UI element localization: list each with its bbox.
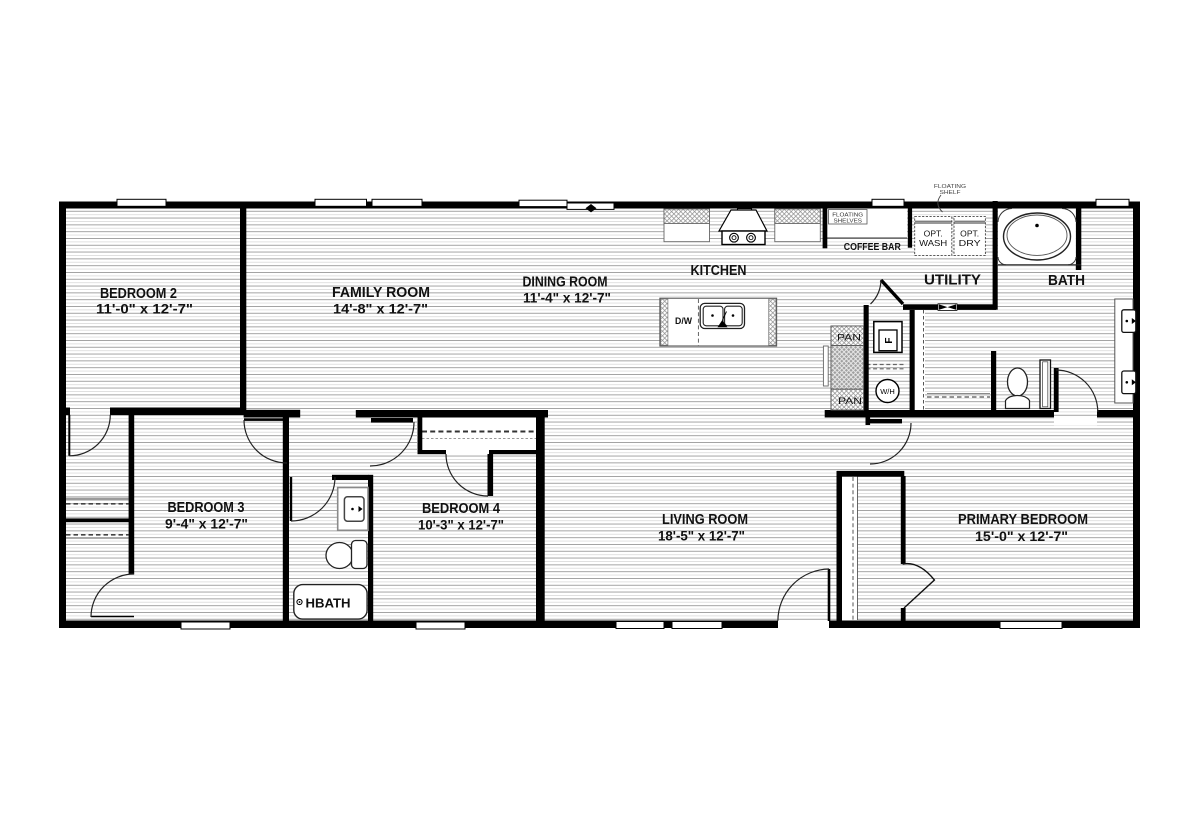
svg-text:COFFEE BAR: COFFEE BAR (844, 241, 901, 253)
svg-text:D/W: D/W (675, 316, 692, 326)
svg-text:SHELVES: SHELVES (833, 219, 862, 225)
svg-text:PRIMARY BEDROOM: PRIMARY BEDROOM (958, 512, 1088, 528)
svg-text:15'-0" x 12'-7": 15'-0" x 12'-7" (975, 528, 1068, 544)
svg-text:OPT.: OPT. (924, 229, 943, 239)
svg-text:KITCHEN: KITCHEN (691, 263, 747, 279)
svg-text:9'-4" x 12'-7": 9'-4" x 12'-7" (165, 516, 248, 532)
svg-text:WASH: WASH (919, 238, 947, 248)
svg-text:FAMILY ROOM: FAMILY ROOM (332, 285, 430, 301)
svg-text:11'-4" x 12'-7": 11'-4" x 12'-7" (523, 290, 611, 306)
svg-text:OPT.: OPT. (960, 229, 979, 239)
svg-text:F: F (884, 337, 895, 343)
svg-text:BEDROOM 3: BEDROOM 3 (168, 500, 245, 516)
svg-text:PAN: PAN (838, 396, 862, 407)
svg-text:LIVING ROOM: LIVING ROOM (662, 512, 748, 528)
svg-text:HBATH: HBATH (306, 596, 351, 611)
svg-text:11'-0" x 12'-7": 11'-0" x 12'-7" (96, 301, 193, 317)
svg-text:DINING ROOM: DINING ROOM (523, 275, 608, 291)
svg-text:14'-8" x 12'-7": 14'-8" x 12'-7" (333, 301, 428, 317)
svg-text:FLOATING: FLOATING (934, 184, 966, 190)
svg-text:BATH: BATH (1048, 273, 1085, 289)
svg-text:UTILITY: UTILITY (924, 273, 981, 289)
svg-text:18'-5" x 12'-7": 18'-5" x 12'-7" (658, 528, 745, 544)
svg-text:BEDROOM 4: BEDROOM 4 (422, 501, 500, 517)
svg-text:FLOATING: FLOATING (832, 213, 863, 219)
svg-text:W/H: W/H (880, 387, 895, 396)
svg-text:SHELF: SHELF (939, 190, 961, 196)
svg-text:PAN: PAN (837, 333, 861, 344)
svg-text:DRY: DRY (959, 238, 981, 248)
svg-text:10'-3" x 12'-7": 10'-3" x 12'-7" (418, 517, 504, 533)
